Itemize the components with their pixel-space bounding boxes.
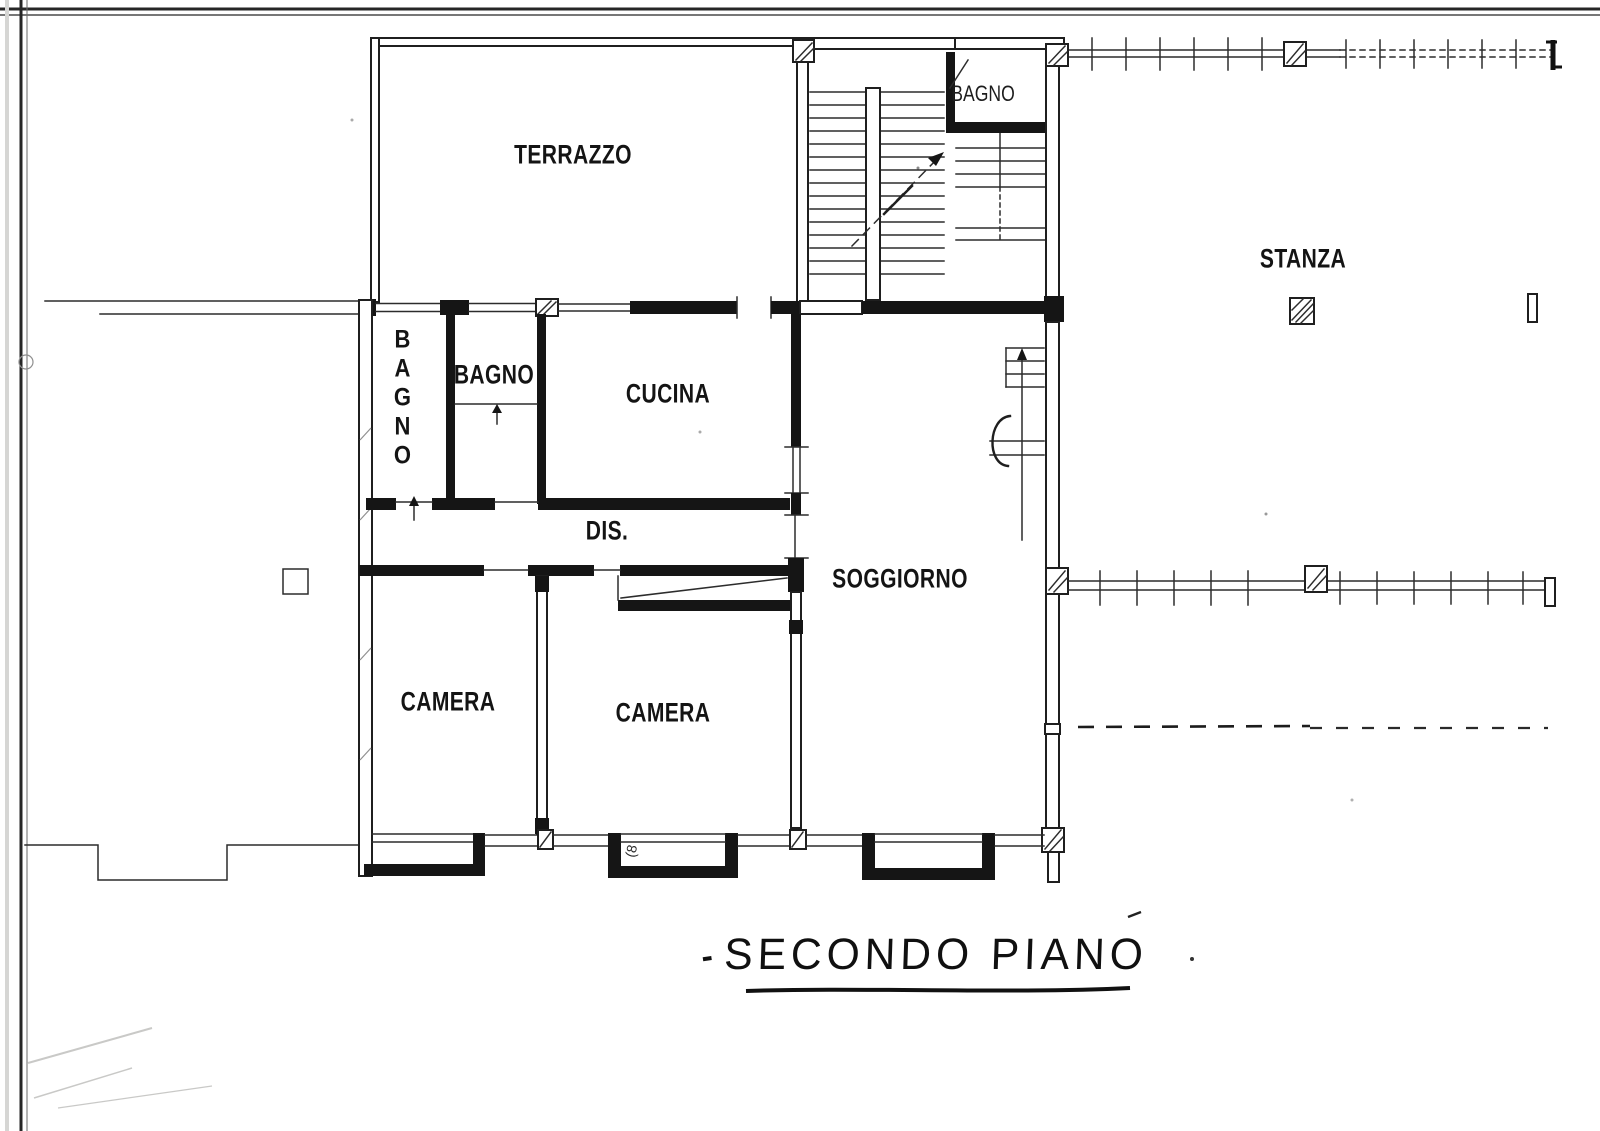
stanza-railing: [1068, 566, 1555, 606]
room-label-camera-left: CAMERA: [401, 687, 496, 718]
stanza-column: [1290, 298, 1314, 324]
boundary-post: [1528, 294, 1537, 322]
stanza-pergola: [1046, 38, 1562, 322]
overhang-dashed-line: [1078, 726, 1548, 728]
room-label-terrazzo: TERRAZZO: [514, 140, 632, 171]
door-swing-arrow: [492, 404, 502, 413]
soggiorno-corner-stair: [990, 348, 1044, 540]
room-label-bagno-stairwell: BAGNO: [951, 81, 1015, 107]
room-label-disimpegno: DIS.: [586, 516, 629, 547]
door-swing-arrow: [409, 496, 419, 506]
stairwell: [793, 38, 1064, 302]
floor-title: SECONDO PIANO: [723, 930, 1148, 980]
west-exterior-wall: [359, 300, 372, 876]
room-label-stanza: STANZA: [1260, 244, 1346, 275]
room-label-cucina: CUCINA: [626, 379, 710, 410]
east-exterior-wall: [1042, 44, 1068, 882]
room-label-soggiorno: SOGGIORNO: [832, 564, 968, 595]
room-label-bagno-left: BAGNO: [389, 326, 415, 471]
stair-steps: [810, 88, 944, 300]
north-wall-and-windows: [359, 297, 1045, 318]
room-label-camera-center: CAMERA: [616, 698, 711, 729]
context-property-lines: [25, 301, 359, 880]
closet: [618, 576, 790, 611]
pergola-end-mark: [1546, 40, 1562, 70]
scanned-floor-plan-page: TERRAZZO BAGNO BAGNO BAGNO CUCINA DIS. S…: [0, 0, 1600, 1131]
stair-lower-flight: [956, 133, 1046, 240]
room-label-bagno-center: BAGNO: [454, 360, 534, 391]
interior-partitions: [359, 314, 808, 834]
railing-end-post: [1545, 578, 1555, 606]
south-wall-balconies: [364, 830, 1044, 880]
soggiorno-west-wall: [785, 314, 808, 828]
